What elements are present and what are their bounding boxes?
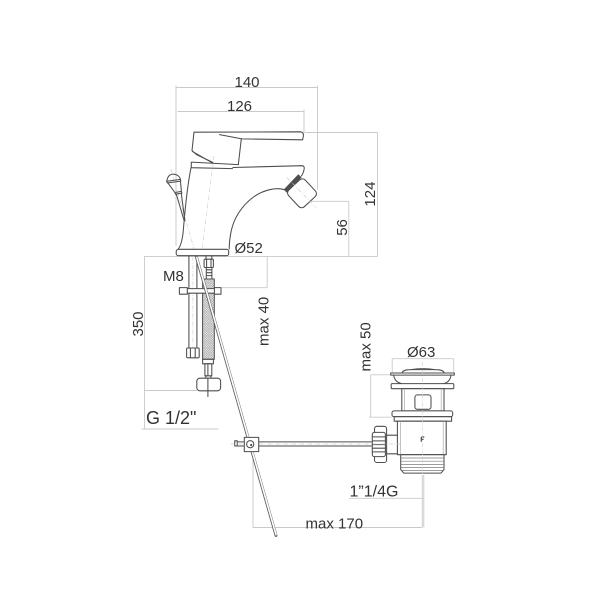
svg-text:124: 124 xyxy=(362,182,379,207)
svg-text:140: 140 xyxy=(235,74,260,91)
svg-text:Ø63: Ø63 xyxy=(407,344,435,361)
svg-text:max 40: max 40 xyxy=(256,297,273,346)
svg-text:M8: M8 xyxy=(163,268,184,285)
svg-text:max 170: max 170 xyxy=(306,516,364,533)
svg-text:126: 126 xyxy=(227,98,252,115)
svg-text:max 50: max 50 xyxy=(357,322,374,371)
svg-text:1”1/4G: 1”1/4G xyxy=(350,484,399,501)
svg-text:350: 350 xyxy=(130,311,147,336)
svg-text:56: 56 xyxy=(334,219,351,236)
svg-text:Ø52: Ø52 xyxy=(235,240,263,257)
svg-text:G 1/2": G 1/2" xyxy=(146,408,196,428)
